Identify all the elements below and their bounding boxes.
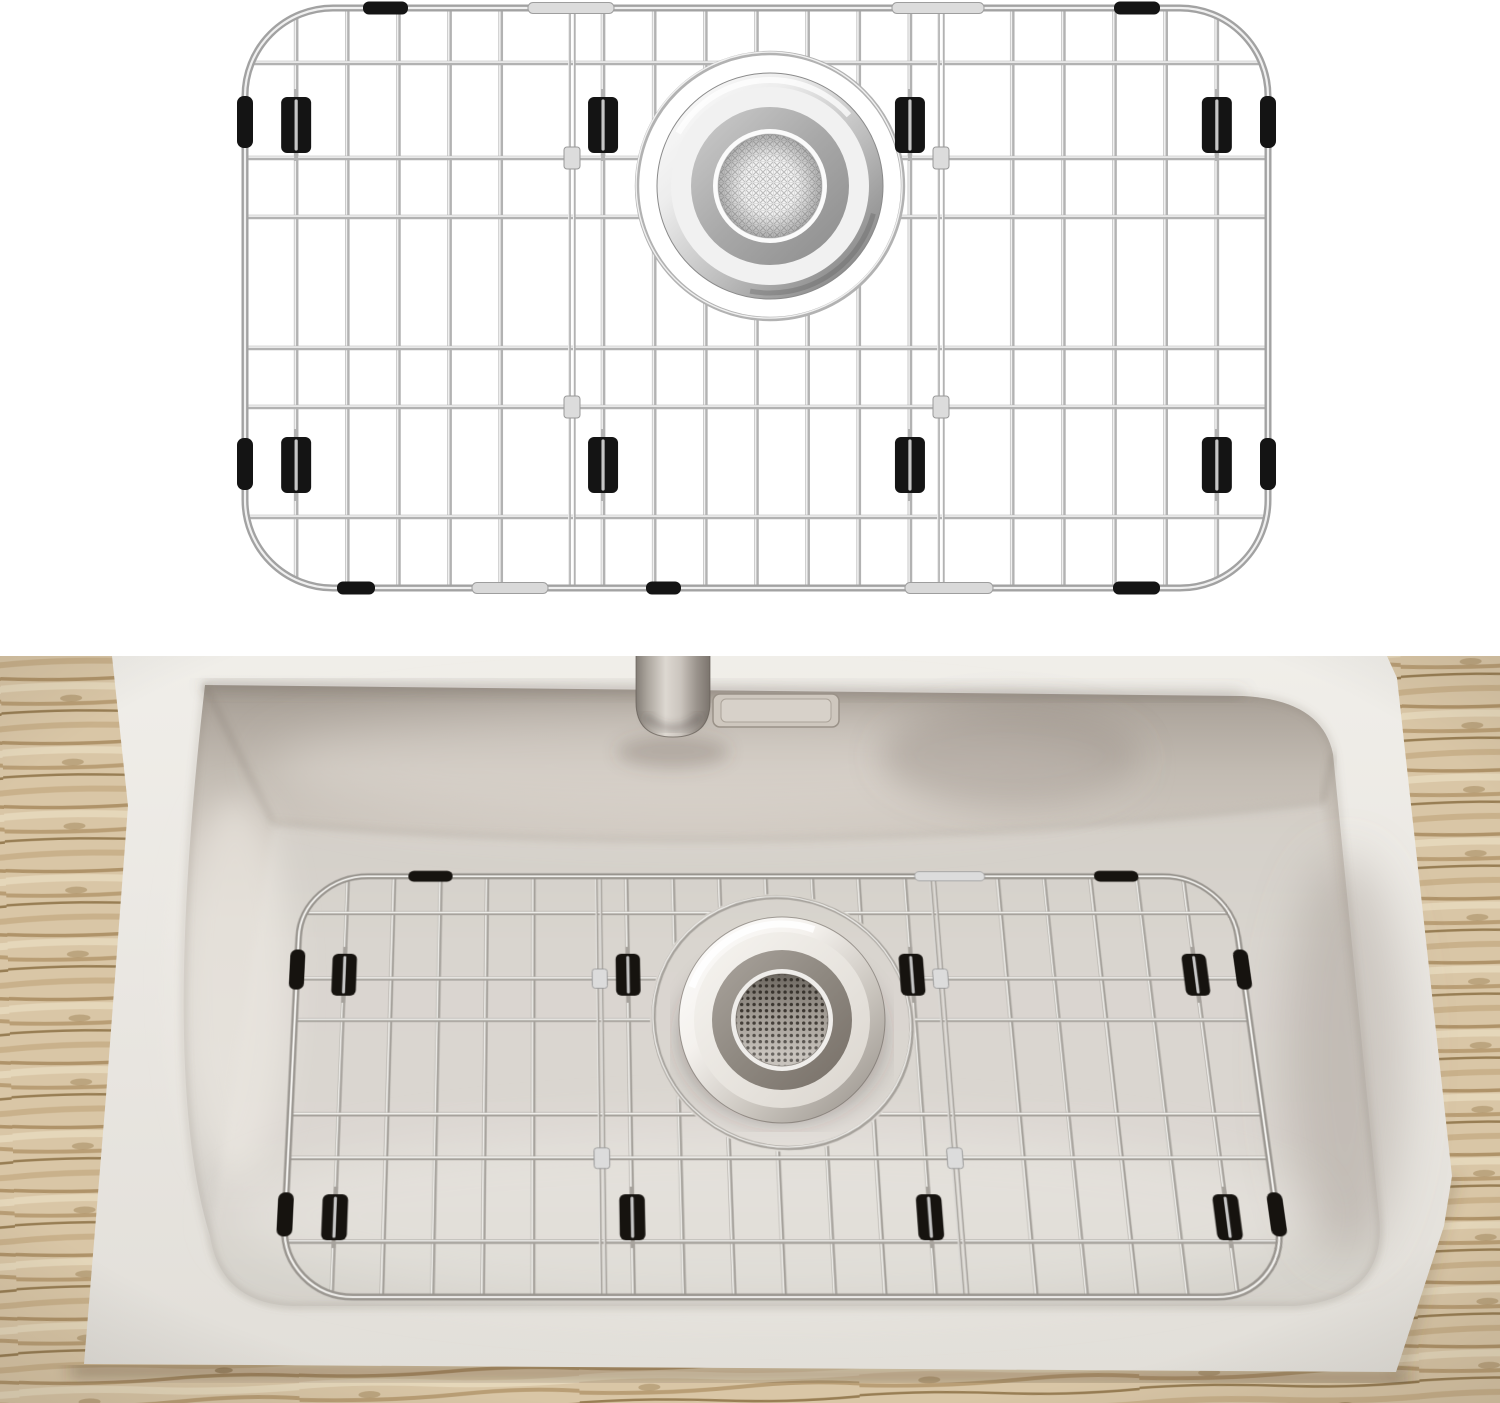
bumper-bottom-sleeve <box>337 582 375 595</box>
bumper-edge-sleeve <box>289 949 306 989</box>
wire-junction-sleeve <box>564 396 580 418</box>
drain-strainer-render <box>652 68 888 304</box>
wire-junction-sleeve <box>933 147 949 169</box>
bumper-edge-sleeve <box>1260 96 1276 148</box>
wire-junction-sleeve <box>933 396 949 418</box>
bumper-bottom-sleeve <box>1113 582 1160 595</box>
strainer-mesh-shading <box>718 134 822 238</box>
bumper-edge-sleeve <box>1266 1192 1288 1236</box>
drain-strainer-in-sink <box>670 908 894 1132</box>
installed-photo-section <box>0 656 1500 1403</box>
bumper-edge-sleeve <box>237 438 253 490</box>
bumper-top-sleeve <box>408 871 452 882</box>
metal-top-sleeve <box>914 872 985 881</box>
bumper-edge-sleeve <box>1260 438 1276 490</box>
wire-junction-sleeve <box>592 969 607 988</box>
metal-bottom-sleeve <box>905 583 993 594</box>
drain-strainer-photo-svg <box>670 908 894 1132</box>
wire-junction-sleeve <box>564 147 580 169</box>
metal-top-sleeve <box>892 3 984 14</box>
bumper-bottom-sleeve <box>646 582 681 595</box>
wire-junction-sleeve <box>932 969 949 988</box>
grid-render-section <box>0 0 1500 656</box>
metal-top-sleeve <box>528 3 614 14</box>
metal-bottom-sleeve <box>472 583 548 594</box>
bumper-top-sleeve <box>363 2 408 15</box>
drain-strainer-render-svg <box>652 68 888 304</box>
bumper-edge-sleeve <box>237 96 253 148</box>
bumper-edge-sleeve <box>276 1192 294 1236</box>
strainer-mesh-shading <box>736 974 828 1066</box>
bumper-top-sleeve <box>1093 871 1138 882</box>
product-listing-image <box>0 0 1500 1403</box>
wire-junction-sleeve <box>594 1148 610 1169</box>
wire-junction-sleeve <box>946 1148 963 1169</box>
bumper-edge-sleeve <box>1232 949 1253 989</box>
bumper-top-sleeve <box>1114 2 1160 15</box>
